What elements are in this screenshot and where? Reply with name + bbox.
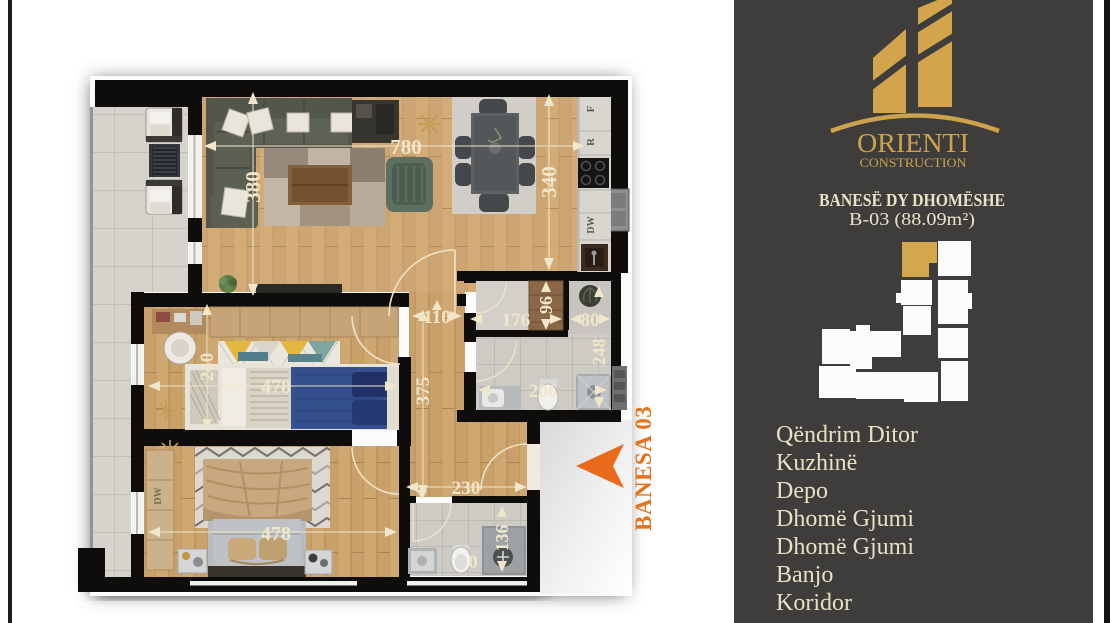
svg-text:CONSTRUCTION: CONSTRUCTION [860, 156, 967, 170]
svg-text:176: 176 [502, 310, 531, 331]
svg-text:Qëndrim Ditor: Qëndrim Ditor [776, 422, 918, 448]
svg-text:478: 478 [261, 523, 291, 545]
svg-text:380: 380 [241, 171, 265, 203]
svg-text:230: 230 [452, 478, 481, 499]
svg-text:DW: DW [586, 216, 597, 233]
svg-text:206: 206 [529, 381, 558, 402]
svg-text:96: 96 [536, 296, 556, 314]
svg-text:Dhomë Gjumi: Dhomë Gjumi [776, 534, 914, 560]
svg-text:240: 240 [197, 353, 218, 382]
svg-text:BANESË DY DHOMËSHE: BANESË DY DHOMËSHE [819, 190, 1005, 210]
svg-text:Kuzhinë: Kuzhinë [776, 450, 857, 476]
svg-text:Depo: Depo [776, 478, 828, 504]
svg-text:80: 80 [581, 310, 600, 331]
svg-text:375: 375 [413, 377, 434, 406]
svg-text:Banjo: Banjo [776, 562, 833, 588]
svg-text:R: R [585, 137, 597, 146]
svg-text:B-03 (88.09m²): B-03 (88.09m²) [849, 209, 975, 230]
svg-text:F: F [585, 105, 597, 112]
svg-text:Koridor: Koridor [776, 590, 852, 616]
svg-text:110: 110 [423, 307, 450, 328]
svg-text:136: 136 [492, 525, 512, 552]
svg-text:248: 248 [589, 339, 609, 366]
svg-text:Dhomë Gjumi: Dhomë Gjumi [776, 506, 914, 532]
svg-text:780: 780 [390, 135, 422, 159]
svg-text:ORIENTI: ORIENTI [857, 128, 969, 158]
svg-text:BANESA 03: BANESA 03 [631, 406, 656, 531]
svg-text:DW: DW [153, 487, 164, 504]
svg-text:340: 340 [537, 166, 561, 198]
svg-text:478: 478 [261, 376, 291, 398]
svg-text:0: 0 [468, 552, 478, 573]
